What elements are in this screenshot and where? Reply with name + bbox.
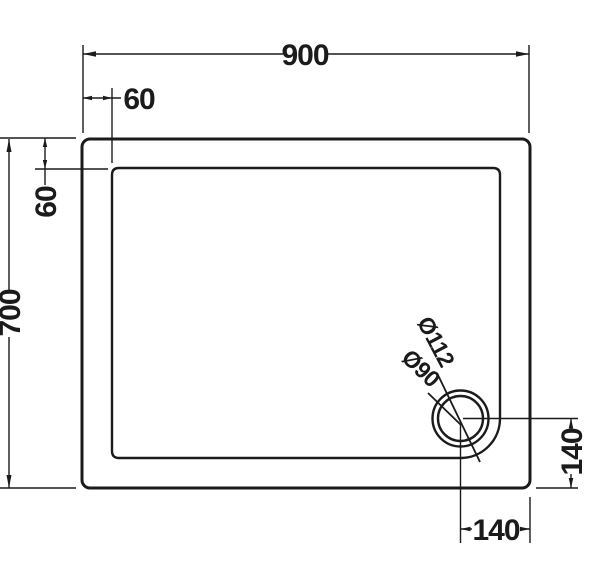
drawing-canvas: 900 60 60 (0, 0, 600, 564)
arrowhead-down (43, 160, 47, 169)
dimension-label-60-top: 60 (123, 83, 155, 116)
arrowhead-up (7, 139, 12, 152)
arrowhead-right (103, 96, 112, 100)
dimension-top-offset: 60 (83, 83, 155, 163)
arrowhead-left (83, 96, 92, 100)
arrowhead-down (569, 478, 574, 488)
arrowhead-up (569, 419, 574, 429)
dimension-label-140-right: 140 (556, 428, 589, 475)
arrowhead-right (520, 527, 530, 531)
leader-line (437, 373, 480, 462)
arrowhead-right (516, 51, 529, 57)
tray-outer-outline (82, 139, 530, 488)
dimension-left-offset: 60 (30, 138, 108, 218)
dimension-label-140-bottom: 140 (472, 514, 519, 547)
drawing-lines: 900 60 60 (0, 39, 589, 547)
dimension-label-60-left: 60 (30, 186, 63, 218)
arrowhead-left (83, 51, 96, 57)
shower-tray-technical-drawing: 900 60 60 (0, 0, 600, 564)
tray-inner-outline (112, 168, 500, 458)
arrowhead-up (43, 138, 47, 147)
dimension-label-900: 900 (281, 39, 328, 72)
dimension-label-700: 700 (0, 289, 27, 336)
arrowhead-down (7, 475, 12, 488)
arrowhead-left (461, 527, 471, 531)
dimension-waste-offset-right: 140 (463, 419, 589, 489)
